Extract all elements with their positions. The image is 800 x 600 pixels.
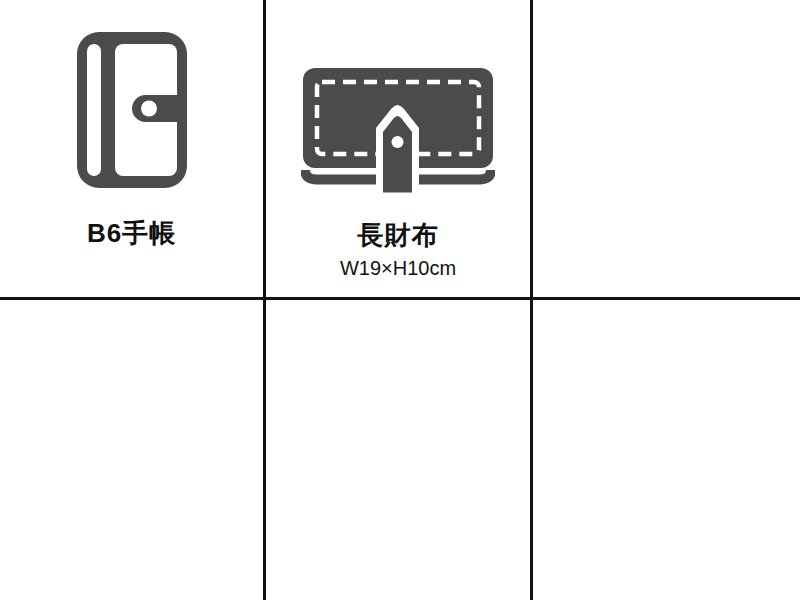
grid-cell-empty-bottom-right	[533, 300, 800, 600]
size-comparison-diagram: B6手帳 長財布 W19×H10cm	[0, 0, 800, 600]
b6-notebook-icon	[77, 32, 187, 188]
long-wallet-icon	[301, 66, 495, 200]
grid-cell-wallet: 長財布 W19×H10cm	[266, 0, 533, 300]
grid-cell-notebook: B6手帳	[0, 0, 266, 300]
wallet-label: 長財布	[358, 220, 439, 251]
grid-cell-empty-bottom-middle	[266, 300, 533, 600]
grid-cell-empty-bottom-left	[0, 300, 266, 600]
wallet-dimensions: W19×H10cm	[340, 256, 456, 280]
comparison-grid: B6手帳 長財布 W19×H10cm	[0, 0, 800, 600]
grid-cell-empty-top-right	[533, 0, 800, 300]
notebook-label: B6手帳	[87, 218, 176, 249]
